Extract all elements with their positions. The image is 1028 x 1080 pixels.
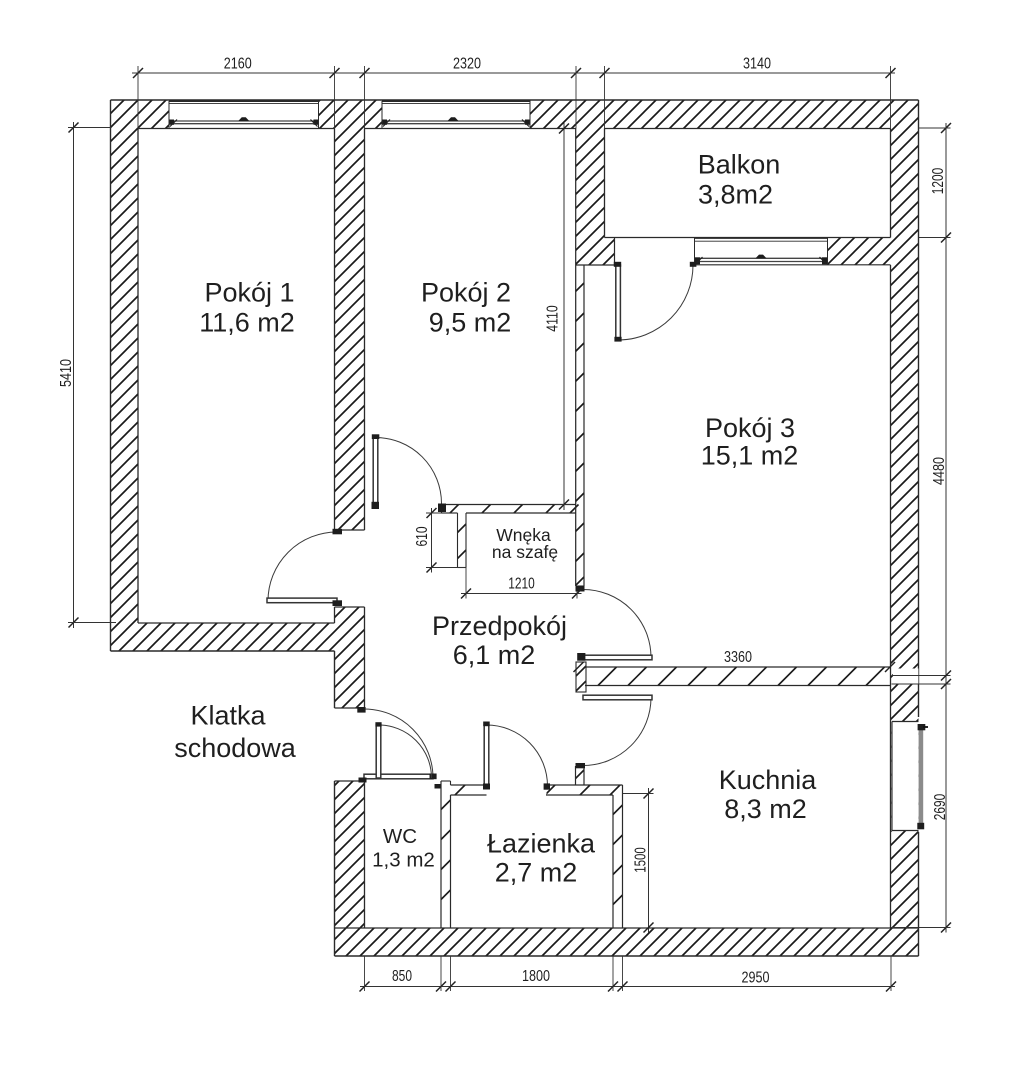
svg-text:2320: 2320 <box>453 56 481 73</box>
svg-text:Balkon: Balkon <box>698 150 781 180</box>
svg-text:4110: 4110 <box>545 305 562 332</box>
svg-text:1210: 1210 <box>508 576 535 593</box>
svg-text:Klatka: Klatka <box>190 701 266 731</box>
svg-text:Pokój 1: Pokój 1 <box>204 278 294 308</box>
svg-text:Pokój 3: Pokój 3 <box>705 413 795 443</box>
svg-text:5410: 5410 <box>58 359 75 387</box>
svg-text:3,8m2: 3,8m2 <box>698 180 773 210</box>
svg-text:3360: 3360 <box>724 649 752 666</box>
svg-text:1,3 m2: 1,3 m2 <box>372 849 435 872</box>
svg-text:9,5 m2: 9,5 m2 <box>429 308 512 338</box>
svg-text:na szafę: na szafę <box>492 542 558 562</box>
svg-text:Łazienka: Łazienka <box>487 829 596 859</box>
svg-text:850: 850 <box>392 968 412 985</box>
svg-text:15,1 m2: 15,1 m2 <box>701 441 799 471</box>
svg-text:2,7 m2: 2,7 m2 <box>495 858 578 888</box>
svg-text:2690: 2690 <box>932 794 949 821</box>
svg-text:8,3 m2: 8,3 m2 <box>724 794 807 824</box>
svg-text:Pokój 2: Pokój 2 <box>421 278 511 308</box>
svg-text:610: 610 <box>414 526 431 546</box>
svg-text:1200: 1200 <box>930 168 947 195</box>
svg-text:schodowa: schodowa <box>174 733 297 763</box>
svg-text:6,1 m2: 6,1 m2 <box>453 640 536 670</box>
svg-text:1800: 1800 <box>522 968 550 985</box>
svg-text:3140: 3140 <box>743 56 771 73</box>
svg-text:4480: 4480 <box>931 457 948 485</box>
svg-text:2950: 2950 <box>742 970 770 987</box>
svg-text:1500: 1500 <box>633 847 650 873</box>
svg-text:2160: 2160 <box>224 56 252 73</box>
svg-text:WC: WC <box>383 825 417 848</box>
svg-text:Przedpokój: Przedpokój <box>432 611 567 641</box>
svg-text:Kuchnia: Kuchnia <box>719 765 818 795</box>
svg-text:11,6 m2: 11,6 m2 <box>199 308 295 338</box>
